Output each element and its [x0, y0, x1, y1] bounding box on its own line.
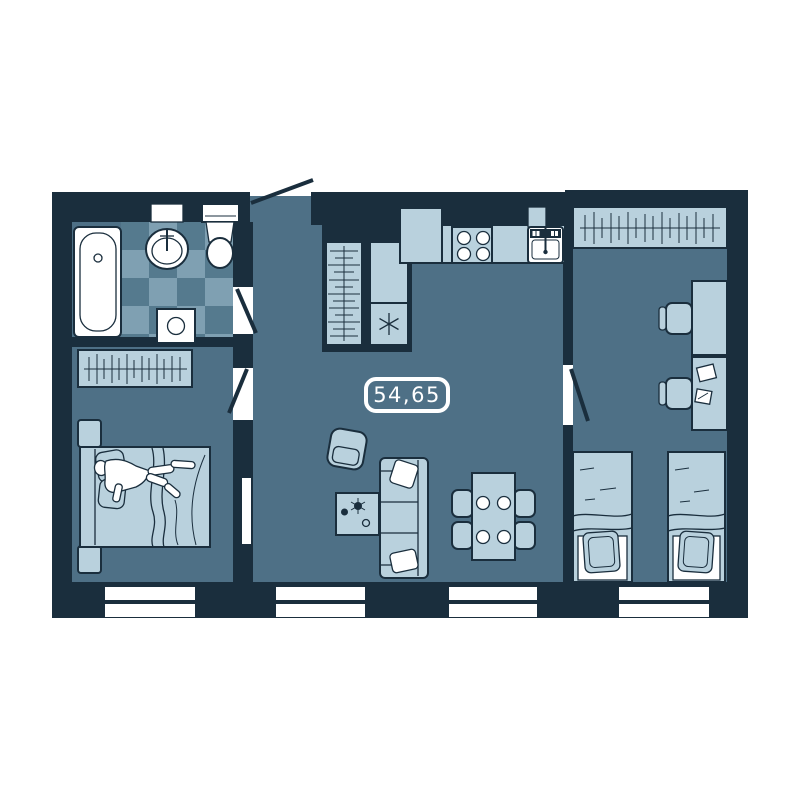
double-bed-icon: [80, 447, 210, 547]
plate-icon: [498, 497, 511, 510]
nightstand-bottom-icon: [78, 546, 101, 573]
dining-chair-icon: [452, 490, 473, 517]
wash-basin-icon: [146, 204, 188, 269]
bedroom: [78, 350, 210, 573]
bedroom-wardrobe-icon: [78, 350, 192, 387]
bathtub-icon: [74, 227, 121, 337]
stove-icon: [452, 227, 492, 263]
coffee-table-icon: [336, 493, 379, 535]
kids-wardrobe-icon: [573, 207, 727, 248]
single-bed-icon: [573, 452, 632, 582]
dining-chair-icon: [452, 522, 473, 549]
wall-right: [727, 190, 748, 618]
desk-chair-icon: [659, 378, 692, 409]
nightstand-top-icon: [78, 420, 101, 447]
apartment-floor-plan: 54,65: [0, 0, 800, 800]
dining-table-icon: [472, 473, 515, 560]
desk-icon: [692, 281, 727, 355]
dining-chair-icon: [514, 490, 535, 517]
wall-bathroom-right-upper: [233, 222, 253, 287]
wall-bedroom-upper: [233, 347, 253, 368]
plate-icon: [477, 497, 490, 510]
wall-door-panel: [242, 478, 251, 544]
area-label-badge: 54,65: [364, 377, 450, 413]
sofa-icon: [380, 458, 428, 578]
kitchen-counter-bump: [528, 207, 546, 227]
desk-chair-icon: [659, 303, 692, 334]
armchair-icon: [326, 427, 368, 471]
kitchen-counter-left: [400, 208, 442, 263]
single-bed-icon: [668, 452, 725, 582]
hall-closet-icon: [326, 242, 362, 345]
washing-machine-icon: [157, 309, 195, 343]
dining-chair-icon: [514, 522, 535, 549]
kitchen-sink-icon: [528, 227, 563, 263]
refrigerator-icon: [370, 303, 408, 345]
plate-icon: [477, 531, 490, 544]
wall-left: [52, 192, 72, 618]
plate-icon: [498, 531, 511, 544]
wall-kidsroom-lower: [563, 425, 573, 582]
wall-top-right: [565, 190, 748, 207]
area-label-text: 54,65: [373, 385, 441, 406]
